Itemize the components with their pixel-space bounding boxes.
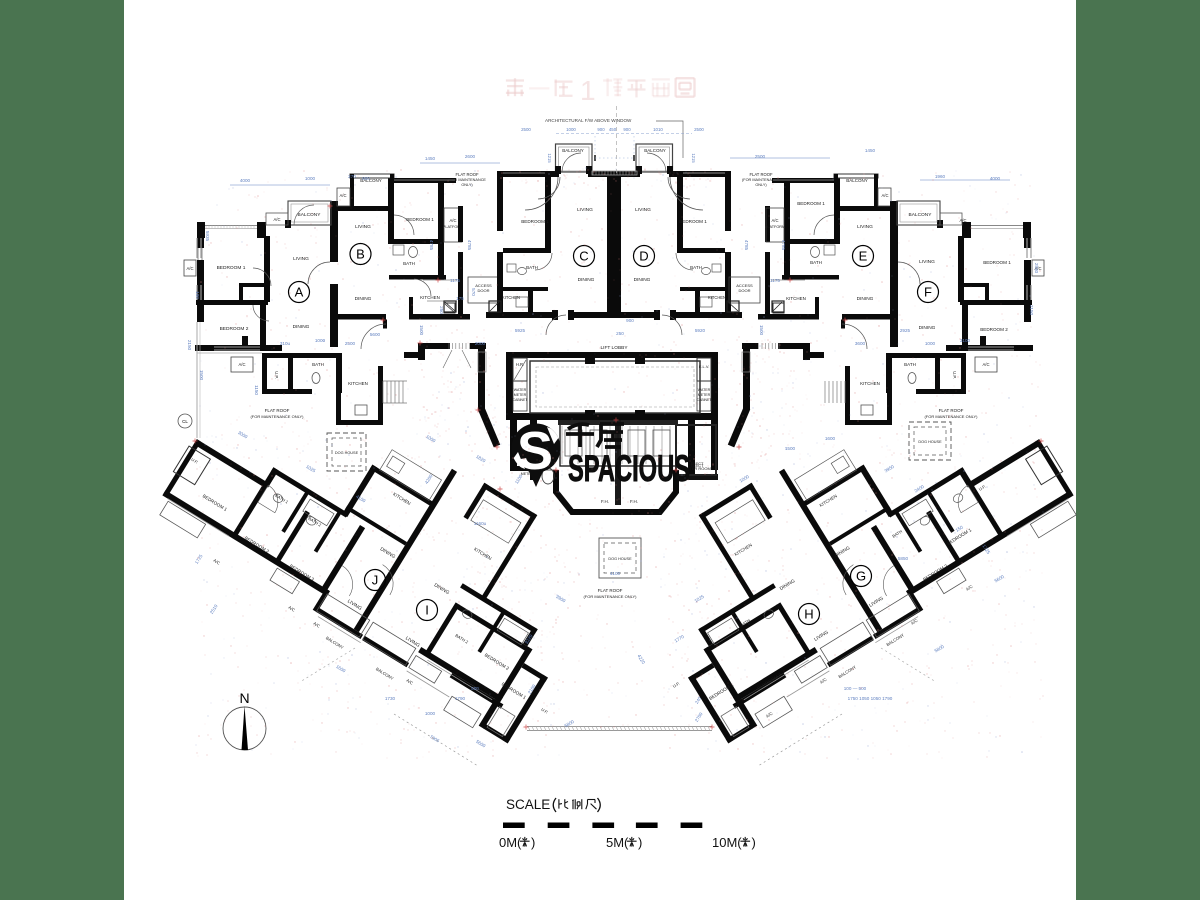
svg-text:100: 100 [195,291,200,299]
svg-text:250: 250 [439,306,444,314]
svg-text:310u: 310u [280,341,291,346]
svg-text:SPACIOUS: SPACIOUS [568,448,690,489]
svg-text:DINING: DINING [919,325,936,331]
svg-text:DOG HOUSE: DOG HOUSE [918,440,942,444]
svg-text:A/C: A/C [239,362,246,367]
svg-text:SCALE: SCALE [506,797,550,812]
svg-text:KITCHEN: KITCHEN [348,381,368,386]
svg-text:4785: 4785 [467,240,472,251]
svg-text:DOG HOUSE: DOG HOUSE [608,557,632,561]
svg-text:FLAT ROOF: FLAT ROOF [265,408,290,413]
svg-text:FLAT ROOF: FLAT ROOF [598,588,623,593]
svg-text:5M(: 5M( [606,835,629,850]
svg-text:BEDROOM 2: BEDROOM 2 [980,327,1008,332]
svg-text:1160u: 1160u [474,521,487,526]
svg-text:A/C: A/C [274,217,281,222]
svg-text:LIVING: LIVING [635,207,651,213]
svg-text:5925: 5925 [515,328,526,333]
svg-text:5920: 5920 [695,328,706,333]
svg-text:1215: 1215 [547,153,552,163]
svg-text:ARCHITECTURAL F/W ABOVE WINDOW: ARCHITECTURAL F/W ABOVE WINDOW [545,118,632,123]
svg-text:1150: 1150 [254,385,259,395]
svg-text:500: 500 [471,686,479,691]
svg-text:D: D [639,249,648,264]
svg-text:BALCONY: BALCONY [562,148,584,153]
svg-text:BALCONY: BALCONY [298,212,322,218]
svg-text:DINING: DINING [293,324,310,330]
svg-text:A: A [295,285,304,300]
svg-text:ELECT: ELECT [691,463,704,468]
svg-text:3100: 3100 [960,338,971,343]
svg-text:1600: 1600 [825,436,836,441]
svg-text:F.H.: F.H. [601,499,609,504]
svg-text:(FOR MAINTENANCE ONLY): (FOR MAINTENANCE ONLY) [583,594,637,599]
svg-text:KITCHEN: KITCHEN [502,295,520,300]
svg-text:A/C: A/C [882,193,889,198]
svg-text:DINING: DINING [578,277,595,283]
svg-text:1730: 1730 [385,696,396,701]
svg-text:E: E [859,249,868,264]
svg-text:1175: 1175 [770,278,780,283]
svg-text:DOOR: DOOR [478,288,490,293]
svg-text:ONLY): ONLY) [755,183,767,187]
svg-text:PLATFORM: PLATFORM [765,225,785,229]
svg-text:BATH: BATH [690,265,702,270]
svg-text:4000: 4000 [240,178,251,183]
svg-text:FLAT ROOF: FLAT ROOF [939,408,964,413]
svg-text:LIVING: LIVING [355,224,371,230]
svg-text:METER: METER [514,393,527,397]
svg-text:5600: 5600 [370,332,381,337]
svg-text:KITCHEN: KITCHEN [420,295,440,300]
svg-text:450: 450 [609,127,617,132]
svg-text:KITCHEN: KITCHEN [708,295,726,300]
svg-text:BEDROOM 1: BEDROOM 1 [521,219,549,224]
svg-text:F.H.: F.H. [630,499,638,504]
svg-text:LIVING: LIVING [919,259,935,265]
svg-text:BEDROOM 1: BEDROOM 1 [679,219,707,224]
svg-text:1790: 1790 [455,696,466,701]
svg-text:BALCONY: BALCONY [909,212,933,218]
svg-text:1500: 1500 [199,370,204,381]
svg-text:1500: 1500 [419,325,424,336]
svg-text:(FOR MAINTENANCE ONLY): (FOR MAINTENANCE ONLY) [924,414,978,419]
svg-text:LIFT LOBBY: LIFT LOBBY [600,345,628,351]
svg-text:1500: 1500 [759,325,764,336]
svg-text:A/C: A/C [960,218,967,223]
svg-text:F: F [924,285,932,300]
svg-text:B: B [356,247,365,262]
svg-text:2600: 2600 [465,154,476,159]
svg-text:1960: 1960 [935,174,946,179]
svg-text:2150: 2150 [187,340,192,351]
svg-text:4100: 4100 [610,571,621,576]
svg-text:10M(: 10M( [712,835,742,850]
svg-text:): ) [531,835,535,850]
svg-text:G: G [856,569,866,584]
svg-text:900: 900 [623,127,631,132]
svg-text:1000: 1000 [566,127,576,132]
svg-text:BATH: BATH [810,260,822,265]
svg-text:WATER: WATER [514,388,527,392]
svg-text:1000: 1000 [925,341,936,346]
svg-text:900: 900 [362,176,370,181]
svg-text:DOOR: DOOR [739,288,751,293]
svg-text:BEDROOM 1: BEDROOM 1 [983,260,1011,265]
svg-text:1: 1 [580,75,596,106]
svg-text:BALCONY: BALCONY [644,148,666,153]
svg-text:BATH: BATH [403,261,415,266]
svg-text:BATH: BATH [904,362,916,367]
svg-text:3600: 3600 [855,341,866,346]
svg-text:U.P.: U.P. [952,371,957,379]
svg-text:S: S [517,421,553,481]
svg-text:): ) [638,835,642,850]
svg-text:FLAT ROOF: FLAT ROOF [749,172,773,177]
svg-text:2150: 2150 [1029,305,1034,316]
svg-text:1000: 1000 [305,176,316,181]
svg-text:2930: 2930 [1034,263,1039,274]
svg-text:2925: 2925 [900,328,911,333]
svg-text:A/C: A/C [187,266,194,271]
svg-text:1175: 1175 [450,278,460,283]
svg-text:A/C: A/C [772,218,779,223]
svg-text:): ) [752,835,756,850]
svg-text:DINING: DINING [857,296,874,302]
svg-text:H: H [804,607,813,622]
svg-text:900: 900 [597,127,605,132]
svg-text:LIVING: LIVING [577,207,593,213]
svg-text:250: 250 [616,331,624,336]
svg-text:4785: 4785 [429,240,434,251]
svg-text:BEDROOM 1: BEDROOM 1 [406,217,434,222]
svg-text:DOG HOUSE: DOG HOUSE [335,451,359,455]
svg-text:N: N [239,690,249,706]
svg-text:BATH: BATH [312,362,324,367]
svg-text:570: 570 [471,288,476,296]
svg-text:DINING: DINING [634,277,651,283]
svg-text:1000: 1000 [425,711,436,716]
svg-text:270: 270 [348,174,356,179]
svg-text:2000: 2000 [475,341,486,346]
svg-text:CABINET: CABINET [513,398,528,402]
svg-text:A/C: A/C [983,362,990,367]
svg-text:4785: 4785 [744,240,749,251]
svg-text:0M(: 0M( [499,835,522,850]
svg-text:I: I [425,603,429,618]
svg-text:BEDROOM 1: BEDROOM 1 [217,265,246,271]
svg-text:A/C: A/C [450,218,457,223]
svg-text:BEDROOM 2: BEDROOM 2 [220,326,249,332]
svg-text:LIVING: LIVING [293,256,309,262]
svg-text:BEDROOM 1: BEDROOM 1 [797,201,825,206]
svg-text:5850: 5850 [898,556,909,561]
svg-text:LIVING: LIVING [857,224,873,230]
svg-text:1450: 1450 [425,156,436,161]
svg-text:U.P.: U.P. [274,371,279,379]
svg-text:900: 900 [626,318,634,323]
svg-text:KITCHEN: KITCHEN [786,296,806,301]
svg-text:DINING: DINING [355,296,372,302]
svg-text:2500: 2500 [521,127,531,132]
svg-text:1010: 1010 [653,127,663,132]
svg-text:BATH: BATH [526,265,538,270]
svg-text:100 — 500: 100 — 500 [844,686,867,691]
svg-text:J: J [372,573,379,588]
svg-text:2500: 2500 [345,341,356,346]
svg-text:1750 1050 1050 1790: 1750 1050 1050 1790 [848,696,893,701]
svg-text:1450: 1450 [865,148,876,153]
svg-text:2500: 2500 [694,127,704,132]
svg-text:CL: CL [182,419,188,424]
svg-text:KITCHEN: KITCHEN [860,381,880,386]
svg-text:175: 175 [456,296,464,301]
svg-text:1215: 1215 [691,153,696,163]
svg-text:5935: 5935 [205,231,210,242]
svg-text:(FOR MAINTENANCE ONLY): (FOR MAINTENANCE ONLY) [250,414,304,419]
svg-text:4785: 4785 [781,240,786,251]
svg-text:FLAT ROOF: FLAT ROOF [455,172,479,177]
